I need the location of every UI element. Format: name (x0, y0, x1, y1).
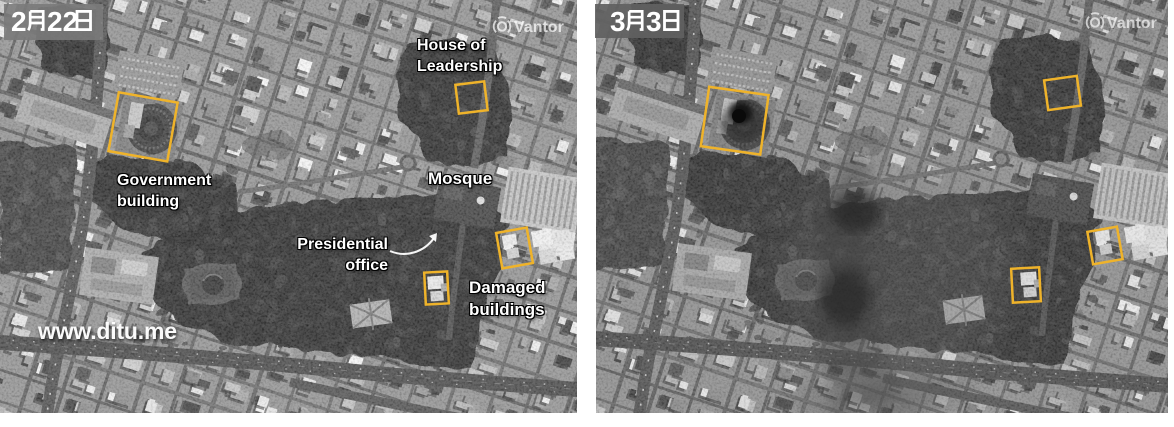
svg-text:2: 2 (11, 6, 27, 37)
svg-text:22: 22 (47, 6, 78, 37)
svg-text:3: 3 (646, 6, 662, 37)
svg-text:3: 3 (610, 6, 626, 37)
